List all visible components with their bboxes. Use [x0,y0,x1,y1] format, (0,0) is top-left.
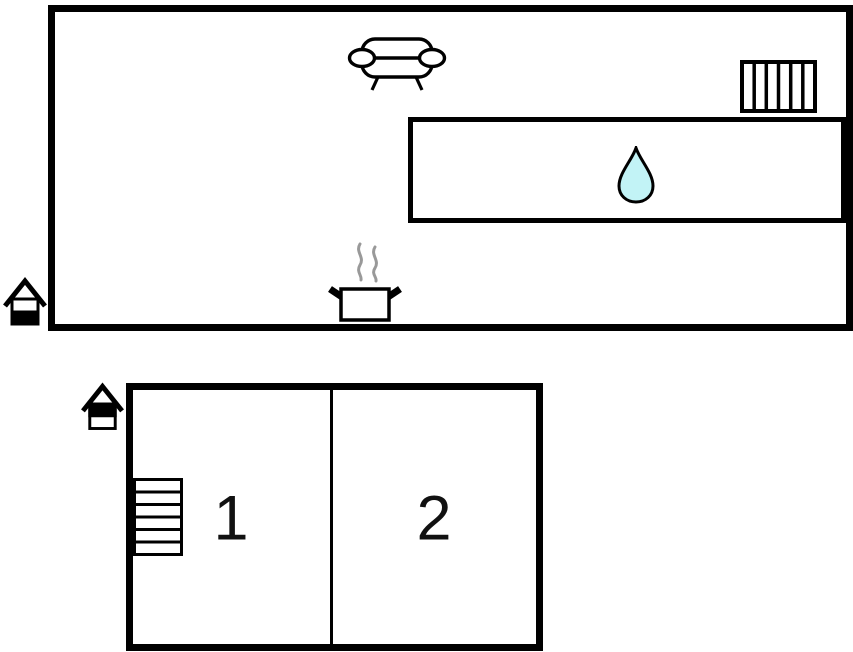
floor-plan-canvas: 1 2 [0,0,853,652]
sofa-icon [347,36,447,92]
steam-icon [359,244,377,281]
room-divider-wall [330,390,333,645]
radiator-icon [740,60,817,113]
water-drop-icon [616,146,656,204]
room-1-label: 1 [213,488,248,551]
stairs-icon [133,478,183,556]
upper-floor-outline [126,383,543,651]
cooking-pot-icon [323,240,407,322]
house-level-icon-upper-half [80,380,125,432]
house-level-icon-lower-half [2,275,48,327]
room-2-label: 2 [416,488,451,551]
